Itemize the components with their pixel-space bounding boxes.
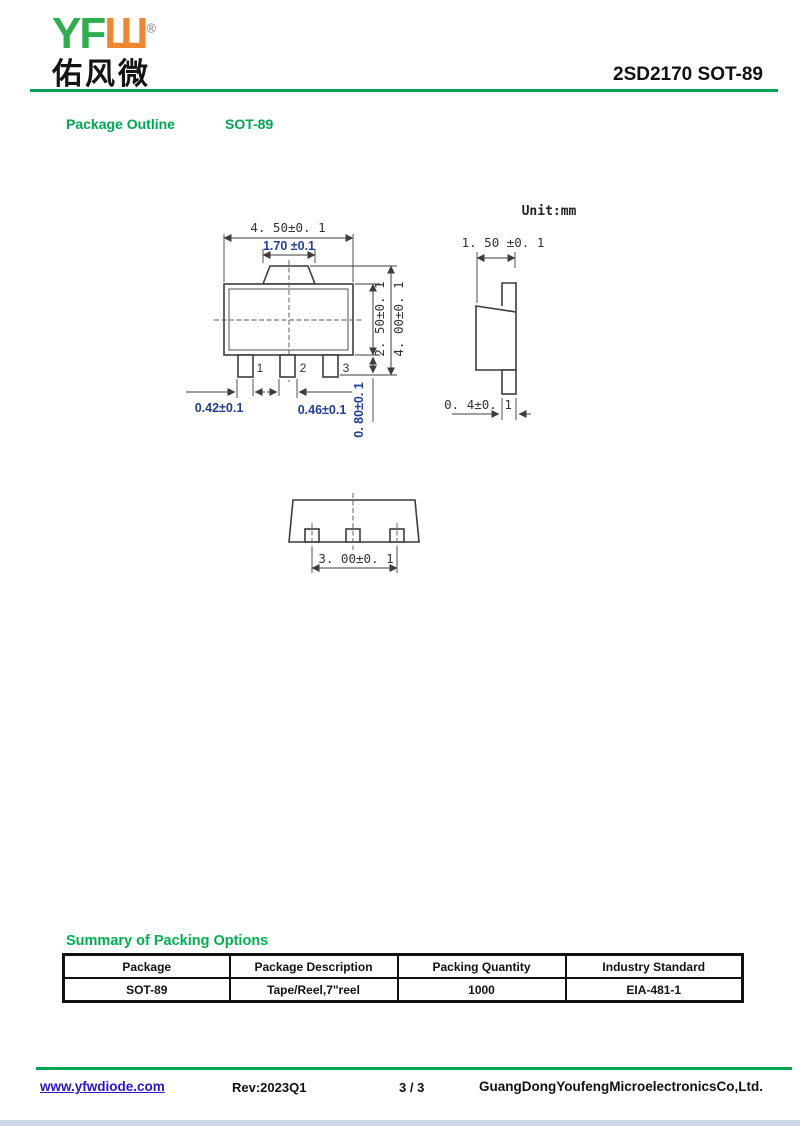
side-view: Unit:mm 1. 50 ±0. 1 0. 4±0. 1: [444, 204, 576, 420]
bottom-bar: [0, 1120, 800, 1126]
table-cell-standard: EIA-481-1: [566, 978, 743, 1002]
table-row: SOT-89 Tape/Reel,7"reel 1000 EIA-481-1: [64, 978, 743, 1002]
dim-tab-width-label: 1.70 ±0.1: [263, 239, 315, 253]
dim-total-height-label: 4. 00±0. 1: [391, 281, 406, 356]
column-header-quantity: Packing Quantity: [398, 955, 566, 979]
pin-number-2: 2: [300, 361, 307, 375]
dim-body-height-label: 2. 50±0. 1: [372, 281, 387, 356]
front-pins: [238, 355, 338, 377]
side-tab: [502, 283, 516, 311]
datasheet-page: YFШ® 佑风微 2SD2170 SOT-89 Package Outline …: [0, 0, 800, 1126]
pin-number-1: 1: [257, 361, 264, 375]
unit-label: Unit:mm: [522, 204, 577, 219]
revision-label: Rev:2023Q1: [232, 1080, 306, 1095]
dim-pin-width-label: 0.42±0.1: [195, 401, 244, 415]
column-header-standard: Industry Standard: [566, 955, 743, 979]
packing-heading: Summary of Packing Options: [66, 933, 268, 949]
dim-center-pin-width-label: 0.46±0.1: [298, 403, 347, 417]
front-body: [224, 284, 353, 355]
table-header-row: Package Package Description Packing Quan…: [64, 955, 743, 979]
front-view: 1 2 3 4. 50±0. 1 1.70 ±0.1: [186, 220, 406, 438]
company-name: GuangDongYoufengMicroelectronicsCo,Ltd.: [479, 1079, 763, 1094]
table-cell-package: SOT-89: [64, 978, 230, 1002]
table-cell-quantity: 1000: [398, 978, 566, 1002]
side-pin: [502, 370, 516, 394]
front-pin-2: [280, 355, 295, 377]
page-number: 3 / 3: [399, 1080, 424, 1095]
dimension-pin-pitch: 3. 00±0. 1: [312, 548, 397, 573]
website-link[interactable]: www.yfwdiode.com: [40, 1079, 165, 1094]
dim-body-width-label: 4. 50±0. 1: [250, 220, 325, 235]
front-pin-1: [238, 355, 253, 377]
package-outline-drawing: 1 2 3 4. 50±0. 1 1.70 ±0.1: [0, 0, 800, 640]
packing-table: Package Package Description Packing Quan…: [62, 953, 744, 1003]
footer-rule: [36, 1067, 792, 1070]
pin-number-3: 3: [343, 361, 350, 375]
bottom-view: 3. 00±0. 1: [289, 493, 419, 573]
table-cell-description: Tape/Reel,7"reel: [230, 978, 398, 1002]
dim-pin-thickness-label: 0. 4±0. 1: [444, 397, 512, 412]
front-pin-3: [323, 355, 338, 377]
dimension-pin-thickness: 0. 4±0. 1: [444, 397, 531, 420]
dimension-tab-width: 1.70 ±0.1: [263, 239, 315, 263]
dim-pin-length-label: 0. 80±0. 1: [352, 382, 366, 438]
column-header-description: Package Description: [230, 955, 398, 979]
dim-pin-pitch-label: 3. 00±0. 1: [318, 551, 393, 566]
dim-thickness-label: 1. 50 ±0. 1: [462, 235, 545, 250]
side-body: [476, 306, 516, 370]
dimension-pin-widths: 0.42±0.1 0.46±0.1: [186, 379, 352, 417]
column-header-package: Package: [64, 955, 230, 979]
